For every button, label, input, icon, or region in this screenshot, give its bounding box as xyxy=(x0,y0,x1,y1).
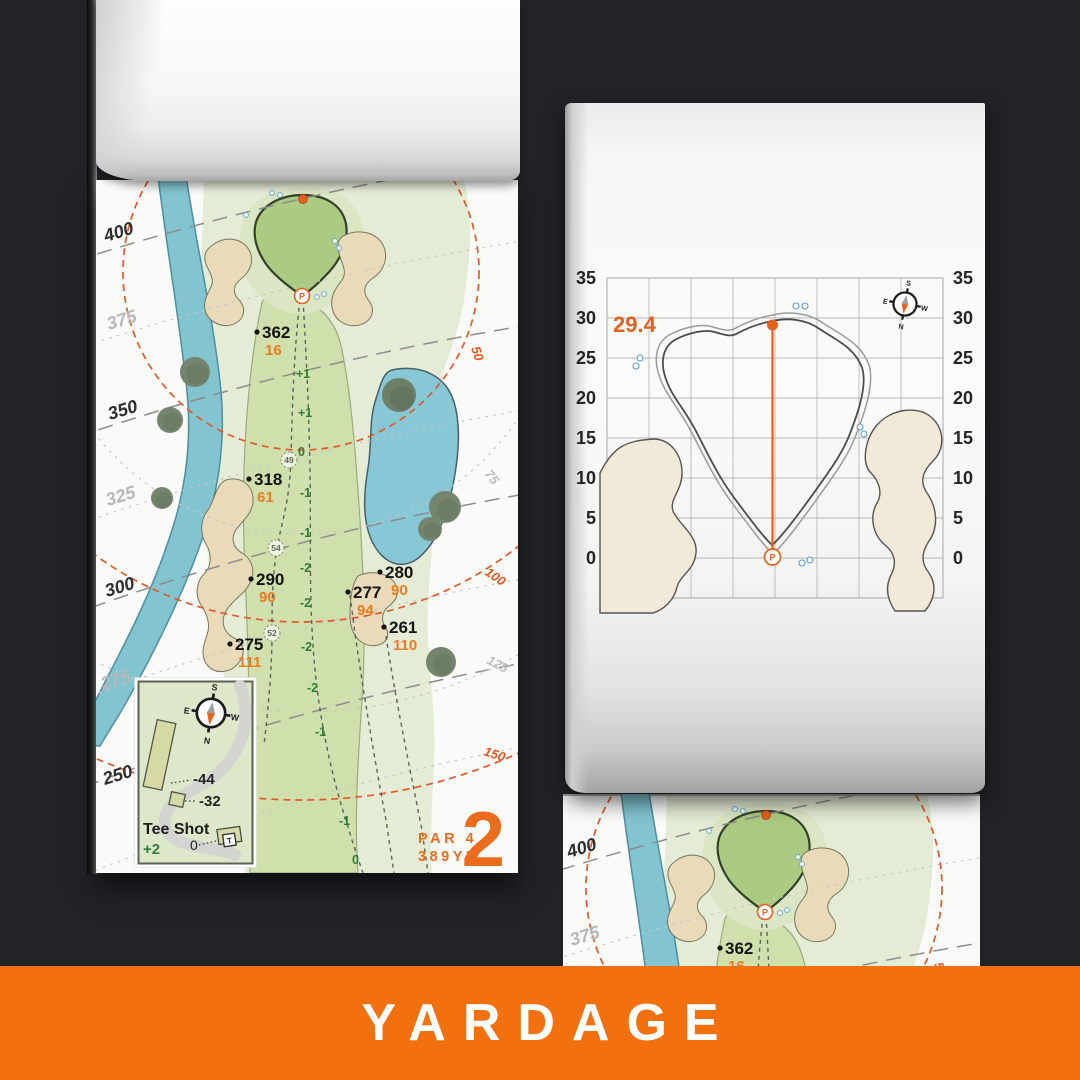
segment-label: 49 xyxy=(284,455,294,465)
pin-marker: P xyxy=(295,289,310,304)
flipped-page-curl xyxy=(96,0,520,181)
greenside-bunker-left xyxy=(600,439,696,613)
green-detail-map: P 29.4 35 30 25 20 15 10 5 0 35 30 25 20… xyxy=(565,103,985,793)
inset-elevation: +2 xyxy=(143,841,160,858)
svg-text:+1: +1 xyxy=(296,367,310,381)
greenside-bunker-right xyxy=(865,410,941,611)
svg-text:P: P xyxy=(299,292,305,302)
inset-carry-short: -32 xyxy=(199,793,221,810)
green-depth-value: 29.4 xyxy=(613,312,657,337)
svg-text:277: 277 xyxy=(353,583,381,602)
svg-text:25: 25 xyxy=(576,348,596,368)
svg-text:30: 30 xyxy=(953,308,973,328)
svg-text:S: S xyxy=(906,279,912,288)
svg-text:15: 15 xyxy=(953,428,973,448)
svg-text:E: E xyxy=(882,297,888,306)
svg-text:15: 15 xyxy=(576,428,596,448)
svg-text:290: 290 xyxy=(256,570,284,589)
svg-text:0: 0 xyxy=(586,548,596,568)
segment-label: 52 xyxy=(267,628,277,638)
svg-text:-1: -1 xyxy=(339,814,350,828)
svg-text:5: 5 xyxy=(586,508,596,528)
svg-text:10: 10 xyxy=(576,468,596,488)
marker-carry: 16 xyxy=(265,342,282,359)
svg-text:280: 280 xyxy=(385,563,413,582)
segment-label: 54 xyxy=(271,543,281,553)
svg-text:35: 35 xyxy=(576,268,596,288)
svg-text:90: 90 xyxy=(259,589,276,606)
compass-icon: S W N E xyxy=(878,276,932,335)
yardage-book-scene: 49 54 52 +1 +1 0 -1 -1 -2 -2 -2 -2 -1 -1… xyxy=(0,0,1080,1080)
hole-map: 49 54 52 +1 +1 0 -1 -1 -2 -2 -2 -2 -1 -1… xyxy=(96,180,518,873)
svg-text:35: 35 xyxy=(953,268,973,288)
tee-box-short xyxy=(169,792,185,808)
svg-text:+1: +1 xyxy=(298,406,312,420)
axis-left: 35 30 25 20 15 10 5 0 xyxy=(576,268,596,568)
svg-text:25: 25 xyxy=(953,348,973,368)
svg-text:0: 0 xyxy=(352,853,359,867)
svg-text:-2: -2 xyxy=(300,561,311,575)
svg-text:-1: -1 xyxy=(315,725,326,739)
marker-yards: 362 xyxy=(262,323,290,342)
inset-title: Tee Shot xyxy=(143,821,210,838)
inset-carry-long: -44 xyxy=(193,771,215,788)
svg-text:-2: -2 xyxy=(301,640,312,654)
svg-text:110: 110 xyxy=(393,637,417,654)
svg-text:111: 111 xyxy=(238,654,261,671)
svg-text:10: 10 xyxy=(953,468,973,488)
hole-map-page: 49 54 52 +1 +1 0 -1 -1 -2 -2 -2 -2 -1 -1… xyxy=(96,180,518,873)
svg-text:30: 30 xyxy=(576,308,596,328)
banner-label: YARDAGE xyxy=(344,993,735,1053)
svg-text:W: W xyxy=(920,304,928,313)
svg-text:-2: -2 xyxy=(300,596,311,610)
svg-text:-2: -2 xyxy=(307,681,318,695)
tee-shot-inset: S W N E -44 -32 Tee Shot +2 0 xyxy=(135,678,257,868)
svg-text:261: 261 xyxy=(389,618,417,637)
svg-text:5: 5 xyxy=(953,508,963,528)
axis-right: 35 30 25 20 15 10 5 0 xyxy=(953,268,973,568)
svg-text:94: 94 xyxy=(357,602,374,619)
hole-number: 2 xyxy=(462,795,505,873)
svg-text:90: 90 xyxy=(391,582,408,599)
inset-zero: 0 xyxy=(190,837,198,853)
svg-text:N: N xyxy=(203,735,211,746)
svg-text:275: 275 xyxy=(235,635,263,654)
svg-text:20: 20 xyxy=(953,388,973,408)
svg-text:-1: -1 xyxy=(300,486,311,500)
yardage-banner: YARDAGE xyxy=(0,966,1080,1080)
green-outline-inner xyxy=(663,319,864,545)
svg-text:20: 20 xyxy=(576,388,596,408)
next-hole-map xyxy=(563,794,980,968)
svg-text:-1: -1 xyxy=(300,526,311,540)
pin-marker: P xyxy=(769,553,775,563)
svg-text:0: 0 xyxy=(298,445,305,459)
svg-text:318: 318 xyxy=(254,470,282,489)
green-detail-page: P 29.4 35 30 25 20 15 10 5 0 35 30 25 20… xyxy=(565,103,985,793)
svg-text:N: N xyxy=(898,323,904,332)
svg-text:61: 61 xyxy=(257,489,274,506)
hole-location-dot xyxy=(299,195,308,204)
svg-text:0: 0 xyxy=(953,548,963,568)
next-hole-page xyxy=(563,794,980,968)
